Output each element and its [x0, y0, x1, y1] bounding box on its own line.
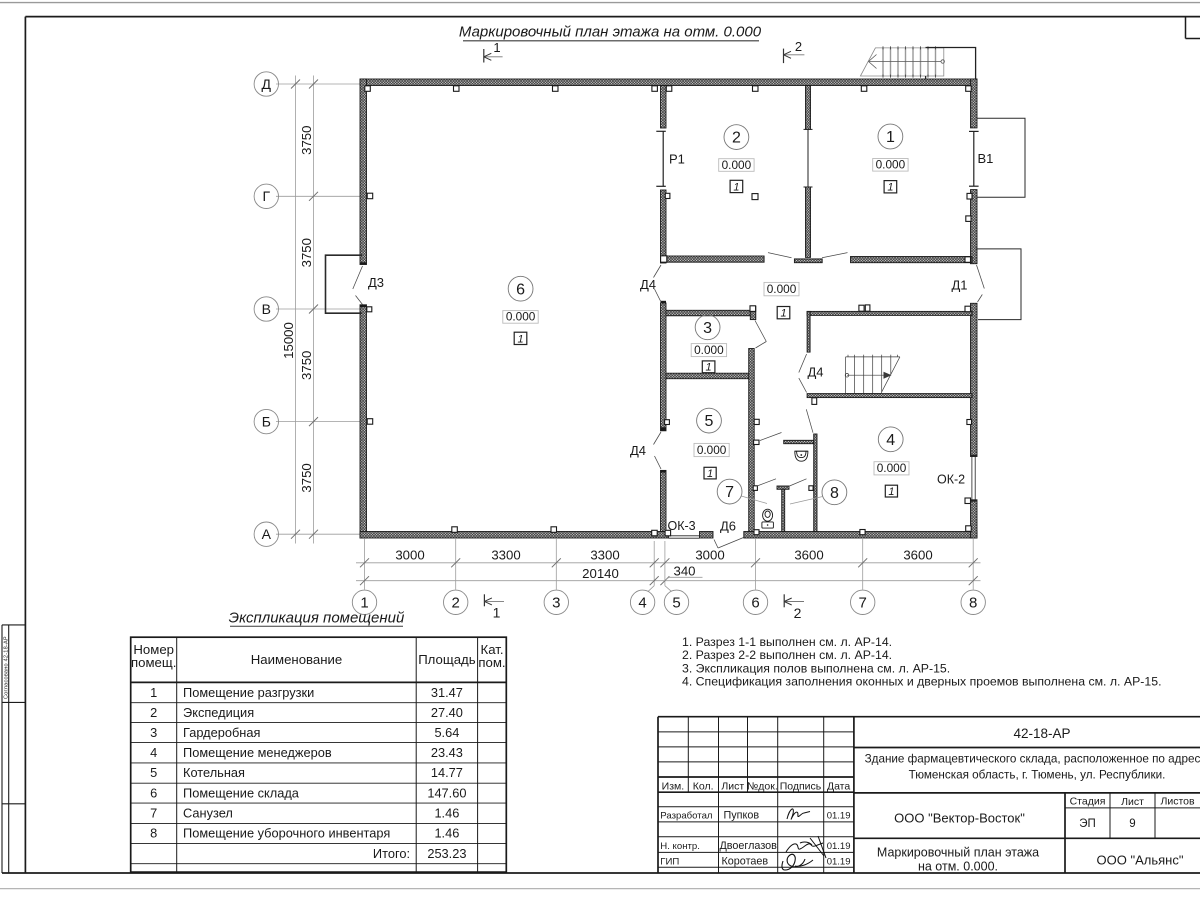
svg-text:Лист: Лист: [1121, 796, 1144, 808]
svg-text:№док.: №док.: [747, 780, 778, 792]
svg-text:1: 1: [887, 182, 893, 194]
svg-text:3600: 3600: [794, 547, 823, 562]
svg-text:пом.: пом.: [478, 655, 505, 670]
svg-text:Подпись: Подпись: [780, 780, 822, 792]
svg-text:6: 6: [150, 785, 157, 800]
svg-text:ООО "Вектор-Восток": ООО "Вектор-Восток": [894, 811, 1025, 826]
svg-text:3600: 3600: [903, 547, 932, 562]
svg-text:Санузел: Санузел: [183, 806, 233, 821]
svg-text:ГИП: ГИП: [660, 856, 679, 867]
svg-text:3: 3: [552, 595, 560, 612]
svg-text:1: 1: [707, 468, 713, 480]
svg-text:15000: 15000: [281, 322, 296, 359]
svg-text:2: 2: [150, 705, 157, 720]
svg-text:Помещение менеджеров: Помещение менеджеров: [183, 745, 332, 760]
svg-text:4: 4: [150, 745, 157, 760]
svg-text:0.000: 0.000: [877, 461, 907, 475]
svg-text:1: 1: [706, 362, 712, 374]
svg-text:253.23: 253.23: [427, 846, 466, 861]
svg-text:Листов: Листов: [1160, 796, 1195, 808]
svg-text:20140: 20140: [582, 566, 619, 581]
svg-text:8: 8: [830, 485, 839, 502]
svg-text:помещ.: помещ.: [131, 655, 176, 670]
svg-text:1. Разрез 1-1 выполнен см. л.: 1. Разрез 1-1 выполнен см. л. АР-14.: [682, 635, 892, 649]
svg-text:1: 1: [150, 685, 157, 700]
svg-text:В1: В1: [978, 151, 994, 166]
svg-text:Пупков: Пупков: [724, 809, 760, 821]
svg-text:6: 6: [516, 281, 525, 298]
svg-text:Д: Д: [262, 76, 272, 92]
svg-text:0.000: 0.000: [506, 310, 536, 324]
svg-text:Площадь: Площадь: [418, 652, 476, 667]
svg-text:3000: 3000: [695, 547, 724, 562]
svg-text:0.000: 0.000: [697, 443, 727, 457]
svg-text:3000: 3000: [395, 547, 424, 562]
svg-text:Дата: Дата: [827, 780, 850, 792]
svg-text:1: 1: [493, 40, 500, 55]
svg-text:1: 1: [780, 308, 786, 320]
svg-text:Двоеглазов: Двоеглазов: [720, 840, 778, 852]
svg-text:4. Спецификация заполнения око: 4. Спецификация заполнения оконных и две…: [682, 675, 1161, 689]
svg-text:Д1: Д1: [952, 278, 968, 293]
svg-text:Помещение склада: Помещение склада: [183, 785, 300, 800]
svg-text:Д4: Д4: [640, 277, 656, 292]
svg-text:Р1: Р1: [669, 152, 685, 167]
svg-text:ОК-3: ОК-3: [668, 519, 696, 533]
svg-text:Н. контр.: Н. контр.: [660, 841, 700, 852]
svg-text:Маркировочный план этажа: Маркировочный план этажа: [877, 846, 1039, 860]
svg-text:А: А: [262, 526, 272, 542]
svg-text:Согласовано 42-18-АР: Согласовано 42-18-АР: [3, 636, 9, 699]
svg-text:1: 1: [888, 486, 894, 498]
svg-text:8: 8: [969, 595, 977, 612]
svg-text:0.000: 0.000: [694, 343, 724, 357]
svg-text:3300: 3300: [590, 547, 619, 562]
svg-text:01.19: 01.19: [827, 841, 851, 852]
svg-text:42-18-АР: 42-18-АР: [1013, 726, 1070, 741]
svg-text:6: 6: [751, 595, 759, 612]
svg-text:8: 8: [150, 826, 157, 841]
svg-text:1: 1: [733, 181, 739, 193]
svg-text:3: 3: [703, 320, 712, 337]
svg-text:4: 4: [638, 595, 646, 612]
svg-text:2: 2: [795, 39, 802, 54]
svg-text:27.40: 27.40: [431, 705, 463, 720]
svg-text:0.000: 0.000: [876, 158, 906, 172]
svg-text:14.77: 14.77: [431, 765, 463, 780]
svg-text:2: 2: [732, 130, 741, 147]
svg-text:31.47: 31.47: [431, 685, 463, 700]
svg-text:Котельная: Котельная: [183, 765, 245, 780]
svg-text:Коротаев: Коротаев: [722, 855, 769, 867]
svg-text:Д6: Д6: [720, 519, 736, 534]
svg-text:Разработал: Разработал: [660, 810, 712, 821]
svg-text:3750: 3750: [299, 238, 314, 267]
svg-text:1: 1: [886, 129, 895, 146]
svg-text:3300: 3300: [491, 547, 520, 562]
svg-text:Маркировочный план этажа на от: Маркировочный план этажа на отм. 0.000: [459, 24, 762, 41]
svg-text:147.60: 147.60: [427, 785, 466, 800]
svg-text:Д3: Д3: [368, 275, 384, 290]
svg-text:1.46: 1.46: [434, 826, 459, 841]
svg-text:Г: Г: [263, 188, 271, 204]
svg-text:Тюменская область, г. Тюмень,: Тюменская область, г. Тюмень, ул. Респуб…: [909, 768, 1166, 781]
svg-text:ЭП: ЭП: [1079, 818, 1096, 830]
svg-text:7: 7: [725, 484, 734, 501]
svg-text:1: 1: [518, 333, 524, 345]
svg-text:5: 5: [672, 595, 680, 612]
svg-text:Экспликация помещений: Экспликация помещений: [229, 610, 405, 627]
svg-text:9: 9: [1129, 818, 1135, 830]
svg-text:01.19: 01.19: [827, 810, 851, 821]
svg-text:ООО "Альянс": ООО "Альянс": [1097, 853, 1184, 868]
svg-text:3750: 3750: [299, 126, 314, 155]
svg-text:Помещение разгрузки: Помещение разгрузки: [183, 685, 314, 700]
svg-text:0.000: 0.000: [722, 158, 752, 172]
svg-text:01.19: 01.19: [827, 856, 851, 867]
svg-text:Экспедиция: Экспедиция: [183, 705, 254, 720]
svg-text:3. Экспликация полов выполнена: 3. Экспликация полов выполнена см. л. АР…: [682, 661, 950, 675]
svg-text:Изм.: Изм.: [662, 780, 685, 792]
svg-text:1.46: 1.46: [434, 806, 459, 821]
svg-text:4: 4: [886, 432, 895, 449]
svg-text:Стадия: Стадия: [1070, 796, 1106, 808]
svg-text:ОК-2: ОК-2: [937, 473, 965, 487]
svg-text:на отм. 0.000.: на отм. 0.000.: [918, 860, 998, 874]
svg-text:Наименование: Наименование: [251, 652, 342, 667]
svg-text:0.000: 0.000: [767, 282, 797, 296]
svg-text:5: 5: [705, 413, 714, 430]
svg-text:5.64: 5.64: [434, 725, 459, 740]
svg-text:3750: 3750: [299, 351, 314, 380]
svg-text:2: 2: [452, 595, 460, 612]
svg-text:Д4: Д4: [630, 443, 646, 458]
svg-text:23.43: 23.43: [431, 745, 463, 760]
svg-text:Итого:: Итого:: [373, 846, 410, 861]
svg-text:В: В: [262, 301, 271, 317]
svg-text:7: 7: [859, 595, 867, 612]
svg-text:Кол.: Кол.: [693, 780, 714, 792]
svg-text:3750: 3750: [299, 463, 314, 492]
svg-text:Б: Б: [262, 414, 271, 430]
svg-text:Помещение уборочного инвентаря: Помещение уборочного инвентаря: [183, 826, 390, 841]
svg-text:Д4: Д4: [808, 365, 824, 380]
svg-text:1: 1: [493, 605, 501, 621]
svg-text:Лист: Лист: [721, 780, 744, 792]
svg-text:Гардеробная: Гардеробная: [183, 725, 260, 740]
svg-text:340: 340: [673, 564, 695, 579]
svg-text:Здание фармацевтического склад: Здание фармацевтического склада, располо…: [865, 752, 1200, 765]
svg-text:2: 2: [794, 605, 802, 621]
svg-text:2. Разрез 2-2 выполнен см. л.: 2. Разрез 2-2 выполнен см. л. АР-14.: [682, 648, 892, 662]
svg-text:7: 7: [150, 806, 157, 821]
svg-text:5: 5: [150, 765, 157, 780]
svg-text:3: 3: [150, 725, 157, 740]
